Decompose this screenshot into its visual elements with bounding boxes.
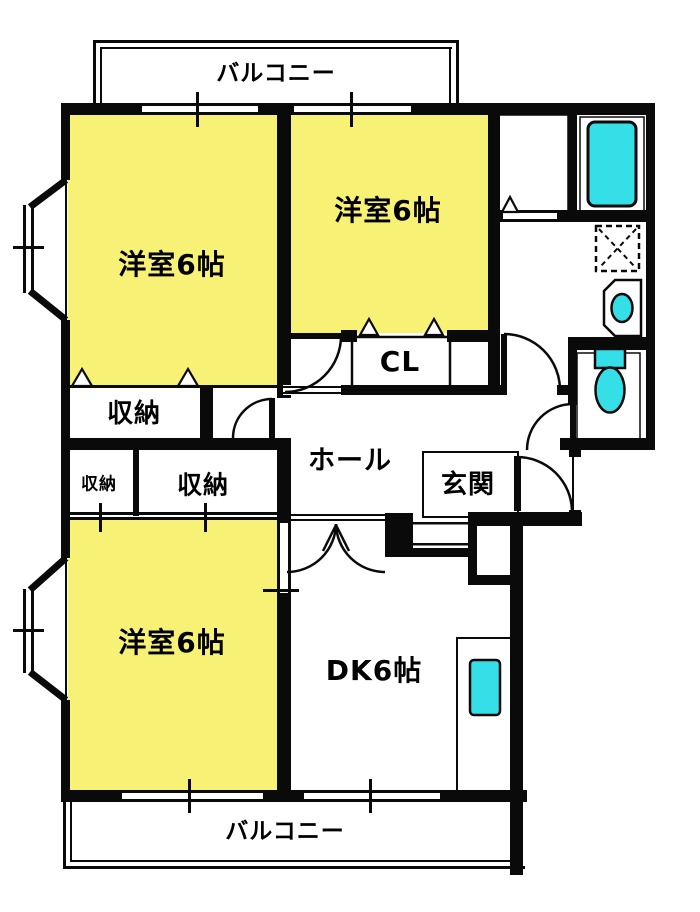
bedroom-bottom-left-label: 洋室6帖 bbox=[118, 629, 225, 657]
bay-window-bottom-icon bbox=[13, 555, 67, 703]
door-opening bbox=[277, 398, 291, 438]
door-bedroom-top-left bbox=[233, 398, 275, 438]
bedroom-top-left-label: 洋室6帖 bbox=[118, 251, 225, 279]
kitchen-sink-icon bbox=[470, 660, 500, 715]
wash-basin-icon bbox=[604, 280, 641, 336]
bay-window-top-icon bbox=[13, 177, 67, 323]
bathtub-icon bbox=[588, 122, 636, 206]
entrance-label: 玄関 bbox=[441, 472, 495, 498]
hall-label: ホール bbox=[308, 448, 392, 475]
dining-kitchen-label: DK6帖 bbox=[326, 657, 422, 685]
balcony-top-label: バルコニー bbox=[216, 63, 336, 86]
storage-mid-label: 収納 bbox=[177, 473, 229, 498]
door-opening bbox=[291, 513, 385, 523]
door-washroom bbox=[501, 334, 560, 391]
closet-label: CL bbox=[380, 348, 420, 376]
bedroom-top-middle-label: 洋室6帖 bbox=[334, 197, 441, 225]
door-front-entrance bbox=[514, 456, 572, 511]
door-bedroom-top-middle bbox=[283, 333, 341, 392]
window bbox=[304, 779, 440, 813]
balcony-bottom-label: バルコニー bbox=[225, 821, 345, 844]
dressing-room bbox=[497, 115, 568, 213]
washing-machine-pan-icon bbox=[596, 226, 639, 271]
storage-small-label: 収納 bbox=[81, 477, 117, 494]
entrance-step bbox=[413, 518, 468, 548]
kitchen-counter bbox=[457, 638, 513, 791]
toilet-icon bbox=[595, 349, 625, 413]
storage-main-label: 収納 bbox=[107, 401, 161, 427]
folding-door-icon bbox=[502, 197, 557, 221]
floor-plan: バルコニー 洋室6帖 洋室6帖 CL 収納 ホール 玄関 収納 収納 洋室6帖 … bbox=[0, 0, 700, 912]
door-dk-double bbox=[287, 524, 385, 572]
